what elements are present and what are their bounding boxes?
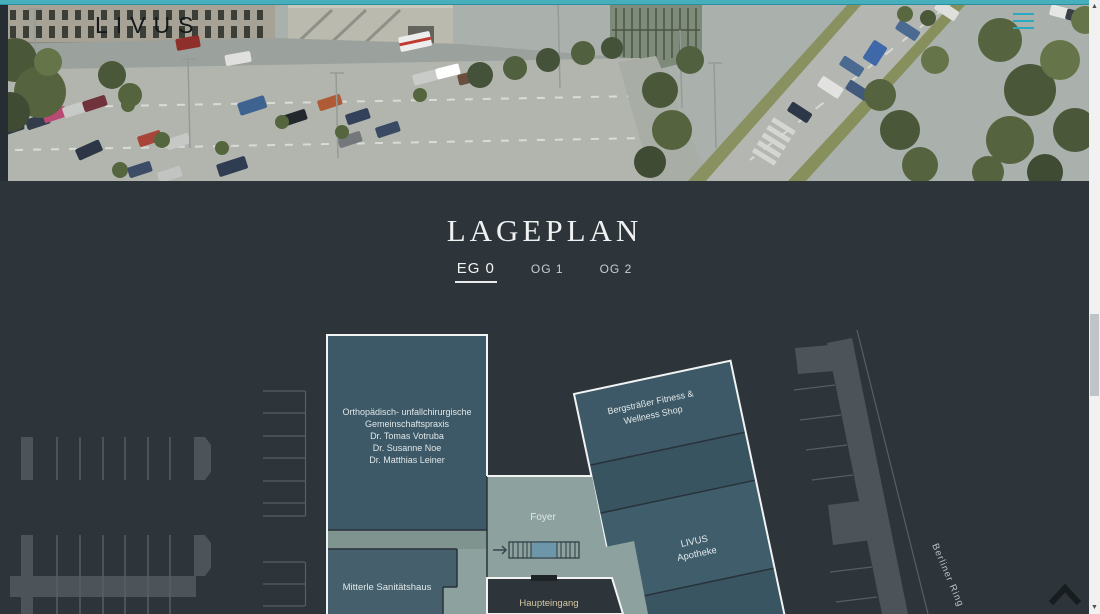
mitterle-label: Mitterle Sanitätshaus [343,582,432,593]
ortho-label: Dr. Tomas Votruba [370,431,444,441]
ortho-label: Dr. Susanne Noe [373,443,442,453]
corridor [328,530,487,549]
floor-plan: Bergsträßer Fitness & Wellness Shop LIVU… [0,180,1089,614]
scroll-down-icon[interactable]: ▼ [1089,601,1100,614]
entrance-door-gap [531,575,557,581]
stairs-icon [509,542,579,558]
chevron-up-icon[interactable] [1053,588,1077,601]
top-accent-bar [0,0,1089,4]
hamburger-line [1013,27,1034,29]
foyer-label: Foyer [530,512,556,523]
ortho-label: Dr. Matthias Leiner [369,455,445,465]
site-logo: LIVUS [95,12,201,39]
ortho-label: Gemeinschaftspraxis [365,419,450,429]
parking-markings-left [10,391,306,614]
ortho-label: Orthopädisch- unfallchirurgische [342,407,471,417]
foyer-block [487,476,612,577]
street-label: Berliner Ring [929,542,966,609]
road-berliner-ring [794,330,928,614]
hamburger-line [1013,20,1034,22]
haupteingang-label: Haupteingang [519,598,578,609]
haupteingang-block: Haupteingang [487,575,623,614]
hamburger-line [1013,13,1034,15]
hamburger-icon[interactable] [1013,13,1035,33]
scroll-up-icon[interactable]: ▲ [1089,0,1100,13]
scrollbar[interactable]: ▲ ▼ [1089,0,1100,614]
scrollbar-thumb[interactable] [1090,314,1099,396]
